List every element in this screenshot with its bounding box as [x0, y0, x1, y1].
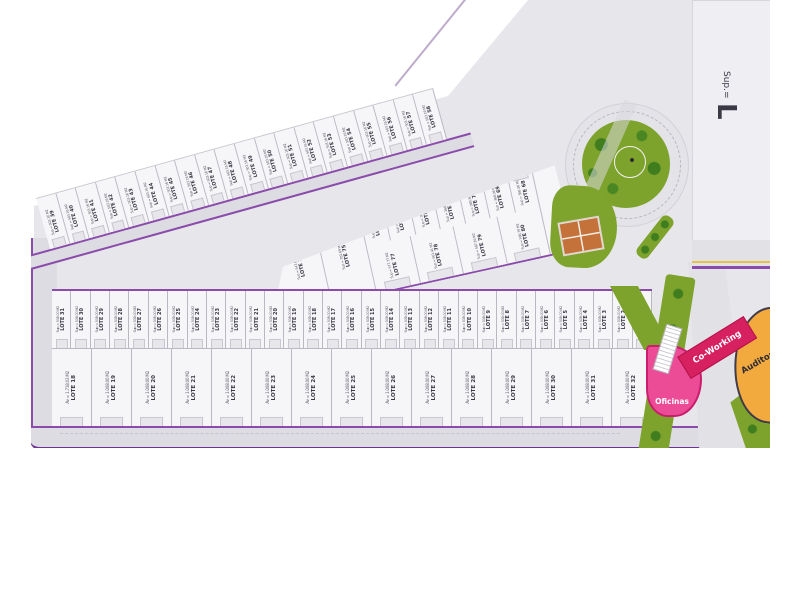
driveway-stub: [380, 417, 403, 426]
driveway-stub: [211, 339, 223, 348]
lot-number-label: LOTE 30: [80, 308, 86, 331]
driveway-stub: [60, 417, 83, 426]
driveway-stub: [300, 417, 323, 426]
lot-number-label: LOTE 30: [551, 375, 557, 401]
lot-number-label: LOTE 23: [271, 375, 277, 401]
lot-area-label: Av = 1.008.00 M2: [306, 371, 311, 404]
lot-area-label: Av = 1.718.03 M2: [66, 371, 71, 404]
driveway-stub: [462, 339, 474, 348]
lot-parcel[interactable]: Av = 1.008.00 M2 LOTE 24: [292, 349, 332, 426]
lot-parcel[interactable]: Av = 1.008.00 M2 LOTE 19: [92, 349, 132, 426]
lane-marking: [60, 433, 620, 434]
driveway-stub: [598, 339, 610, 348]
driveway-stub: [620, 417, 643, 426]
lot-number-label: LOTE 24: [311, 375, 317, 401]
lot-number-label: LOTE 32: [631, 375, 637, 401]
lot-number-label: LOTE 23: [216, 308, 222, 331]
lot-number-label: LOTE 13: [409, 308, 415, 331]
lot-number-label: LOTE 25: [177, 308, 183, 331]
driveway-stub: [56, 339, 68, 348]
lot-parcel[interactable]: Av = 1.008.00 M2 LOTE 26: [372, 349, 412, 426]
lot-number-label: LOTE 28: [471, 375, 477, 401]
lot-parcel[interactable]: Sup = 508.00 M2 LOTE 7: [517, 291, 536, 348]
lot-area-label: Av = 1.008.00 M2: [106, 371, 111, 404]
masterplan-map: Sup = 503.16 M2 LOTE 39 Sup = 503.16 M2 …: [0, 0, 800, 600]
driveway-stub: [580, 417, 603, 426]
lot-parcel[interactable]: Sup = 508.00 M2 LOTE 15: [362, 291, 381, 348]
macro-lot-sup: Sup.=: [721, 71, 731, 99]
driveway-stub: [460, 417, 483, 426]
driveway-stub: [520, 339, 532, 348]
lot-number-label: LOTE 12: [429, 308, 435, 331]
lot-parcel[interactable]: Sup = 508.00 M2 LOTE 25: [168, 291, 187, 348]
lot-number-label: LOTE 18: [313, 308, 319, 331]
lot-parcel[interactable]: Av = 1.008.00 M2 LOTE 31: [572, 349, 612, 426]
lot-number-label: LOTE 8: [506, 310, 512, 329]
driveway-stub: [230, 339, 242, 348]
lot-number-label: LOTE 26: [158, 308, 164, 331]
lot-number-label: LOTE 27: [431, 375, 437, 401]
lot-number-label: LOTE 16: [351, 308, 357, 331]
tennis-court[interactable]: [557, 216, 604, 257]
page-margin-bottom: [0, 448, 800, 600]
lot-parcel[interactable]: Av = 1.008.00 M2 LOTE 29: [492, 349, 532, 426]
lot-area-label: Sup = 508.00 M2: [249, 306, 253, 332]
lot-area-label: Av = 1.008.00 M2: [146, 371, 151, 404]
driveway-stub: [346, 339, 358, 348]
lot-parcel[interactable]: Sup = 508.00 M2 LOTE 10: [459, 291, 478, 348]
lot-number-label: LOTE 20: [274, 308, 280, 331]
lot-parcel[interactable]: Av = 1.008.00 M2 LOTE 21: [172, 349, 212, 426]
lot-parcel[interactable]: Sup = 508.00 M2 LOTE 19: [284, 291, 303, 348]
macro-lot-block[interactable]: Sup.= L: [692, 0, 772, 242]
lot-number-label: LOTE 28: [119, 308, 125, 331]
lot-parcel[interactable]: Sup = 508.00 M2 LOTE 16: [342, 291, 361, 348]
driveway-stub: [482, 339, 494, 348]
lot-area-label: Av = 1.008.00 M2: [226, 371, 231, 404]
lot-number-label: LOTE 21: [255, 308, 261, 331]
lot-parcel[interactable]: Sup = 508.00 M2 LOTE 21: [246, 291, 265, 348]
driveway-stub: [269, 339, 281, 348]
lot-parcel[interactable]: Av = 1.008.00 M2 LOTE 22: [212, 349, 252, 426]
driveway-stub: [443, 339, 455, 348]
north-road-edge: [394, 0, 471, 87]
lot-area-label: Av = 1.008.00 M2: [626, 371, 631, 404]
lot-number-label: LOTE 20: [151, 375, 157, 401]
driveway-stub: [133, 339, 145, 348]
roundabout-monument: [630, 158, 634, 162]
driveway-stub: [500, 417, 523, 426]
lot-area-label: Av = 1.008.00 M2: [506, 371, 511, 404]
lot-number-label: LOTE 21: [191, 375, 197, 401]
east-road: [692, 240, 770, 269]
driveway-stub: [365, 339, 377, 348]
driveway-stub: [249, 339, 261, 348]
driveway-stub: [100, 417, 123, 426]
lot-area-label: Av = 1.008.00 M2: [186, 371, 191, 404]
lot-parcel[interactable]: Sup = 508.00 M2 LOTE 22: [226, 291, 245, 348]
lot-number-label: LOTE 29: [100, 308, 106, 331]
driveway-stub: [152, 339, 164, 348]
lot-parcel[interactable]: Av = 1.008.00 M2 LOTE 28: [452, 349, 492, 426]
lot-number-label: LOTE 31: [61, 308, 67, 331]
driveway-stub: [191, 339, 203, 348]
driveway-stub: [404, 339, 416, 348]
macro-lot-letter: L: [711, 103, 741, 120]
lot-area-label: Av = 1.008.00 M2: [466, 371, 471, 404]
macro-lot-label: Sup.= L: [711, 71, 741, 119]
lot-parcel[interactable]: Sup = 508.00 M2 LOTE 6: [536, 291, 555, 348]
lot-parcel[interactable]: Sup = 508.00 M2 LOTE 24: [188, 291, 207, 348]
lot-parcel[interactable]: Sup = 508.00 M2 LOTE 14: [381, 291, 400, 348]
lot-parcel[interactable]: Sup = 508.00 M2 LOTE 27: [129, 291, 148, 348]
lot-number-label: LOTE 9: [487, 310, 493, 329]
driveway-stub: [140, 417, 163, 426]
lot-parcel[interactable]: Sup = 508.00 M2 LOTE 12: [420, 291, 439, 348]
lot-parcel[interactable]: Sup = 508.00 M2 LOTE 28: [110, 291, 129, 348]
lot-number-label: LOTE 15: [371, 308, 377, 331]
driveway-stub: [424, 339, 436, 348]
lot-number-label: LOTE 18: [71, 375, 77, 401]
lot-parcel[interactable]: Sup = 508.00 M2 LOTE 13: [400, 291, 419, 348]
lot-parcel[interactable]: Av = 1.008.00 M2 LOTE 27: [412, 349, 452, 426]
lot-area-label: Sup = 508.00 M2: [521, 306, 525, 332]
lot-parcel[interactable]: Sup = 508.00 M2 LOTE 3: [594, 291, 613, 348]
lot-area-label: Sup = 508.00 M2: [462, 306, 466, 332]
lot-area-label: Av = 1.008.00 M2: [586, 371, 591, 404]
lot-number-label: LOTE 10: [468, 308, 474, 331]
lot-area-label: Av = 1.008.00 M2: [266, 371, 271, 404]
lot-number-label: LOTE 19: [293, 308, 299, 331]
driveway-stub: [327, 339, 339, 348]
lot-area-label: Av = 1.008.00 M2: [426, 371, 431, 404]
lot-parcel[interactable]: Sup = 508.00 M2 LOTE 23: [207, 291, 226, 348]
lot-number-label: LOTE 26: [391, 375, 397, 401]
lot-parcel[interactable]: Sup = 508.00 M2 LOTE 5: [555, 291, 574, 348]
driveway-stub: [540, 339, 552, 348]
lot-parcel[interactable]: Sup = 508.00 M2 LOTE 18: [304, 291, 323, 348]
lot-parcel[interactable]: Sup = 508.00 M2 LOTE 30: [71, 291, 90, 348]
lot-parcel[interactable]: Sup = 508.00 M2 LOTE 17: [323, 291, 342, 348]
central-lower-row: Av = 1.718.03 M2 LOTE 18 Av = 1.008.00 M…: [52, 348, 652, 426]
driveway-stub: [172, 339, 184, 348]
driveway-stub: [75, 339, 87, 348]
driveway-stub: [578, 339, 590, 348]
lot-parcel[interactable]: Av = 1.008.00 M2 LOTE 23: [252, 349, 292, 426]
oficinas-label: Oficinas: [648, 397, 696, 406]
lot-number-label: LOTE 11: [448, 308, 454, 331]
lot-parcel[interactable]: Sup = 508.00 M2 LOTE 9: [478, 291, 497, 348]
driveway-stub: [180, 417, 203, 426]
lot-parcel[interactable]: Av = 1.008.00 M2 LOTE 25: [332, 349, 372, 426]
lot-parcel[interactable]: Sup = 508.00 M2 LOTE 8: [497, 291, 516, 348]
driveway-stub: [114, 339, 126, 348]
lot-number-label: LOTE 24: [196, 308, 202, 331]
lot-number-label: LOTE 7: [526, 310, 532, 329]
lot-number-label: LOTE 19: [111, 375, 117, 401]
central-lot-band: Sup = 508.00 M2 LOTE 31 Sup = 508.00 M2 …: [52, 289, 652, 450]
lot-number-label: LOTE 14: [390, 308, 396, 331]
lot-number-label: LOTE 25: [351, 375, 357, 401]
driveway-stub: [288, 339, 300, 348]
driveway-stub: [501, 339, 513, 348]
lot-number-label: LOTE 22: [231, 375, 237, 401]
lot-parcel[interactable]: Sup = 508.00 M2 LOTE 11: [439, 291, 458, 348]
central-upper-row: Sup = 508.00 M2 LOTE 31 Sup = 508.00 M2 …: [52, 289, 652, 348]
driveway-stub: [540, 417, 563, 426]
lot-parcel[interactable]: Sup = 566.79 M2 LOTE 80: [497, 207, 551, 264]
lot-parcel[interactable]: Sup = 508.00 M2 LOTE 26: [149, 291, 168, 348]
lot-number-label: LOTE 27: [138, 308, 144, 331]
lot-parcel[interactable]: Av = 1.008.00 M2 LOTE 30: [532, 349, 572, 426]
roundabout-monument-ring: [614, 146, 646, 178]
lot-number-label: LOTE 29: [511, 375, 517, 401]
lot-parcel[interactable]: Av = 1.008.00 M2 LOTE 20: [132, 349, 172, 426]
lot-parcel[interactable]: Sup = 508.00 M2 LOTE 4: [575, 291, 594, 348]
lot-parcel[interactable]: Sup = 508.00 M2 LOTE 29: [91, 291, 110, 348]
driveway-stub: [340, 417, 363, 426]
lot-area-label: Av = 1.008.00 M2: [546, 371, 551, 404]
driveway-stub: [420, 417, 443, 426]
lot-number-label: LOTE 3: [603, 310, 609, 329]
driveway-stub: [260, 417, 283, 426]
yellow-curb-line: [692, 261, 770, 263]
lot-number-label: LOTE 5: [564, 310, 570, 329]
lot-number-label: LOTE 4: [584, 310, 590, 329]
lot-area-label: Av = 1.008.00 M2: [346, 371, 351, 404]
driveway-stub: [307, 339, 319, 348]
lot-number-label: LOTE 6: [545, 310, 551, 329]
driveway-stub: [220, 417, 243, 426]
lot-parcel[interactable]: Av = 1.718.03 M2 LOTE 18: [52, 349, 92, 426]
lot-parcel[interactable]: Sup = 508.00 M2 LOTE 31: [52, 291, 71, 348]
lot-number-label: LOTE 31: [591, 375, 597, 401]
lot-number-label: LOTE 22: [235, 308, 241, 331]
lot-number-label: LOTE 17: [332, 308, 338, 331]
driveway-stub: [617, 339, 629, 348]
driveway-stub: [559, 339, 571, 348]
lot-parcel[interactable]: Sup = 508.00 M2 LOTE 20: [265, 291, 284, 348]
driveway-stub: [94, 339, 106, 348]
driveway-stub: [385, 339, 397, 348]
lot-area-label: Av = 1.008.00 M2: [386, 371, 391, 404]
